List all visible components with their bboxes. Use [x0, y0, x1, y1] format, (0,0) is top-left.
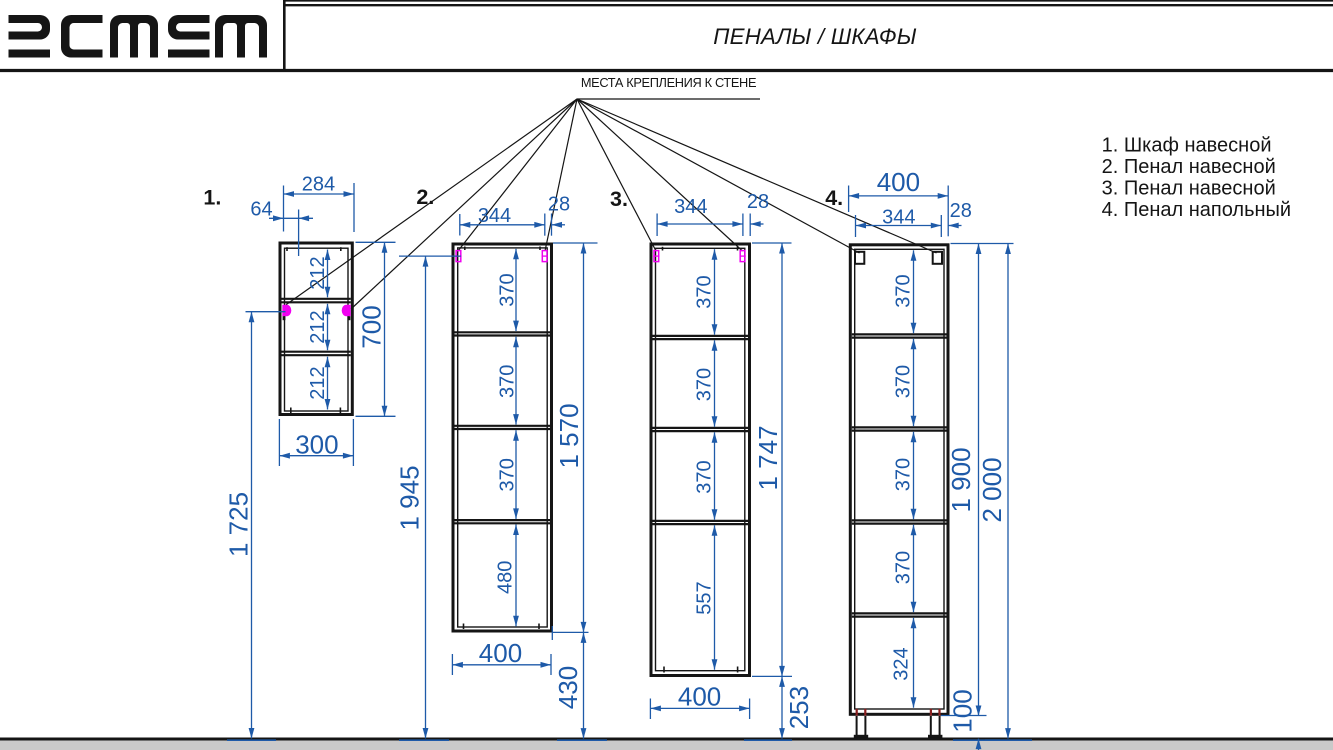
svg-text:253: 253 [784, 686, 814, 729]
svg-text:370: 370 [693, 368, 715, 401]
svg-text:344: 344 [674, 196, 707, 218]
svg-text:370: 370 [893, 365, 915, 398]
svg-text:370: 370 [497, 365, 519, 398]
svg-text:3.: 3. [610, 187, 628, 211]
svg-text:1. Шкаф навесной: 1. Шкаф навесной [1102, 135, 1272, 157]
svg-text:557: 557 [693, 581, 715, 614]
svg-text:370: 370 [497, 458, 519, 491]
svg-text:480: 480 [495, 561, 517, 594]
svg-text:400: 400 [678, 682, 721, 712]
svg-text:370: 370 [497, 273, 519, 306]
svg-text:1 900: 1 900 [946, 447, 976, 512]
svg-text:370: 370 [893, 551, 915, 584]
svg-text:3. Пенал навесной: 3. Пенал навесной [1102, 178, 1276, 200]
svg-text:4. Пенал напольный: 4. Пенал напольный [1102, 199, 1292, 221]
svg-text:4.: 4. [825, 186, 843, 210]
svg-text:28: 28 [548, 194, 570, 216]
svg-text:400: 400 [877, 167, 920, 197]
svg-text:212: 212 [307, 366, 329, 399]
svg-text:2.: 2. [416, 185, 434, 209]
svg-text:370: 370 [693, 275, 715, 308]
svg-text:ПЕНАЛЫ / ШКАФЫ: ПЕНАЛЫ / ШКАФЫ [713, 24, 916, 49]
svg-text:212: 212 [307, 256, 329, 289]
svg-text:300: 300 [295, 430, 338, 460]
svg-text:2 000: 2 000 [977, 457, 1007, 522]
svg-text:2. Пенал навесной: 2. Пенал навесной [1102, 156, 1276, 178]
svg-text:400: 400 [479, 638, 522, 668]
svg-text:1 570: 1 570 [554, 403, 584, 468]
svg-text:28: 28 [747, 191, 769, 213]
svg-text:700: 700 [357, 305, 387, 348]
svg-text:100: 100 [948, 689, 978, 732]
svg-text:1 945: 1 945 [395, 465, 425, 530]
svg-text:344: 344 [882, 207, 915, 229]
svg-text:370: 370 [693, 460, 715, 493]
svg-text:1.: 1. [203, 186, 221, 210]
svg-text:МЕСТА КРЕПЛЕНИЯ К СТЕНЕ: МЕСТА КРЕПЛЕНИЯ К СТЕНЕ [581, 75, 756, 90]
svg-text:212: 212 [307, 310, 329, 343]
svg-text:430: 430 [553, 666, 583, 709]
svg-text:284: 284 [302, 174, 335, 196]
svg-text:370: 370 [893, 458, 915, 491]
svg-text:344: 344 [478, 205, 511, 227]
svg-text:1 725: 1 725 [223, 492, 253, 557]
svg-text:64: 64 [250, 199, 272, 221]
svg-text:28: 28 [950, 200, 972, 222]
svg-text:1 747: 1 747 [753, 425, 783, 490]
svg-text:370: 370 [893, 274, 915, 307]
svg-text:324: 324 [891, 647, 913, 680]
